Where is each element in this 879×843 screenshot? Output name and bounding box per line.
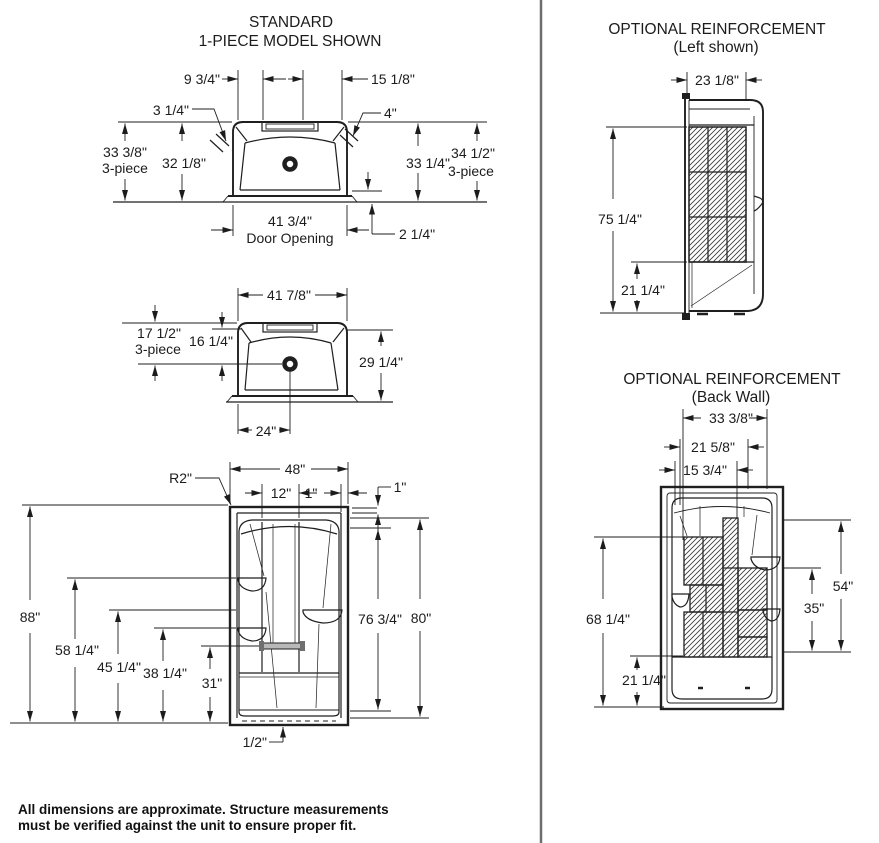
dim-label-depth: 29 1/4": [359, 354, 403, 370]
footnote-line1: All dimensions are approximate. Structur…: [18, 802, 389, 817]
shelf-left: [672, 594, 689, 607]
label-3piece: 3-piece: [135, 341, 181, 357]
view-title-line1: OPTIONAL REINFORCEMENT: [608, 21, 826, 38]
dim-label-shelf-lower: 38 1/4": [143, 665, 187, 681]
dim-label-drain-front-3piece: 17 1/2": [137, 325, 181, 341]
dim-label-width-overall: 48": [285, 461, 306, 477]
dim-label-width-3: 15 3/4": [683, 462, 727, 478]
standard-plan-dimension-lines: [113, 70, 487, 236]
view-title-line2: (Left shown): [673, 39, 758, 56]
dim-label-wall-thickness: 1": [305, 485, 318, 501]
footnote: All dimensions are approximate. Structur…: [18, 802, 389, 833]
back-wall-outline: [661, 487, 783, 709]
dim-label-right-upper: 54": [833, 578, 854, 594]
view-title-line2: (Back Wall): [692, 389, 771, 406]
view-title-line1: STANDARD: [249, 14, 333, 31]
drain-icon: [285, 359, 296, 370]
dim-label-shelf-upper: 58 1/4": [55, 642, 99, 658]
dim-label-width-1: 33 3/8": [709, 410, 753, 426]
dim-label-ledge-right: 4": [384, 105, 397, 121]
drain-icon: [285, 159, 296, 170]
dim-label-height: 75 1/4": [598, 211, 642, 227]
dim-label-height: 68 1/4": [586, 611, 630, 627]
grab-bar: [259, 641, 305, 651]
dim-label-grab-bar: 31": [202, 675, 223, 691]
dim-label-corner-radius: R2": [169, 470, 192, 486]
dim-label-center-column: 12": [271, 485, 292, 501]
label-door-opening: Door Opening: [246, 230, 333, 246]
dim-label-drain-front-inner: 16 1/4": [189, 333, 233, 349]
label-3piece-right: 3-piece: [448, 163, 494, 179]
dim-label-sill: 2 1/4": [399, 226, 435, 242]
dim-label-top-right-offset: 15 1/8": [371, 71, 415, 87]
view-front-elevation: R2" 48" 12" 1" 1" 88" 58 1/4" 45 1/4" 38…: [10, 461, 431, 750]
dim-label-unit-height: 80": [411, 610, 432, 626]
front-elevation-outline: [230, 507, 377, 725]
spec-sheet-page: STANDARD 1-PIECE MODEL SHOWN: [0, 0, 879, 843]
three-piece-pan-outline: [226, 323, 393, 434]
dim-label-ledge-left: 3 1/4": [153, 102, 189, 118]
footnote-line2: must be verified against the unit to ens…: [18, 818, 356, 833]
dim-label-width: 23 1/8": [695, 72, 739, 88]
dim-label-right-lower: 35": [804, 600, 825, 616]
dim-label-top-flange: 1": [394, 479, 407, 495]
three-piece-plan-dimension-lines: [122, 288, 393, 434]
side-view-outline: [682, 93, 763, 320]
dim-label-width-2: 21 5/8": [691, 439, 735, 455]
dim-label-base-gap: 1/2": [243, 734, 267, 750]
dim-label-shelf-right: 45 1/4": [97, 659, 141, 675]
reinforcement-hatch-area: [689, 127, 746, 262]
label-3piece-left: 3-piece: [102, 160, 148, 176]
view-reinforcement-back: OPTIONAL REINFORCEMENT (Back Wall): [586, 371, 853, 709]
technical-drawing-canvas: STANDARD 1-PIECE MODEL SHOWN: [0, 0, 879, 843]
dim-label-depth-overall-3piece: 33 3/8": [103, 144, 147, 160]
view-standard-plan: STANDARD 1-PIECE MODEL SHOWN: [102, 14, 495, 246]
view-title-line2: 1-PIECE MODEL SHOWN: [199, 33, 382, 50]
shower-pan-plan-outline: [223, 122, 357, 202]
dim-label-height-overall: 88": [20, 609, 41, 625]
dim-label-top-left-offset: 9 3/4": [184, 71, 220, 87]
dim-label-base-height: 21 1/4": [621, 282, 665, 298]
dim-label-opening-height: 76 3/4": [358, 611, 402, 627]
shelf-right: [303, 610, 342, 623]
dim-label-depth-inner: 32 1/8": [162, 155, 206, 171]
dim-label-door-opening: 41 3/4": [268, 213, 312, 229]
dim-label-depth-overall-right: 34 1/2": [451, 145, 495, 161]
dim-label-drain-left: 24": [256, 423, 277, 439]
view-reinforcement-left: OPTIONAL REINFORCEMENT (Left shown): [598, 21, 826, 320]
dim-label-depth-right-inner: 33 1/4": [406, 155, 450, 171]
front-elevation-dimension-lines: [10, 462, 429, 742]
dim-label-width-overall: 41 7/8": [267, 287, 311, 303]
view-three-piece-plan: 41 7/8" 17 1/2" 3-piece 16 1/4" 29 1/4" …: [122, 287, 403, 439]
dim-label-base-height: 21 1/4": [622, 672, 666, 688]
reinforcement-hatch-blocks: [684, 518, 767, 657]
view-title-line1: OPTIONAL REINFORCEMENT: [623, 371, 841, 388]
